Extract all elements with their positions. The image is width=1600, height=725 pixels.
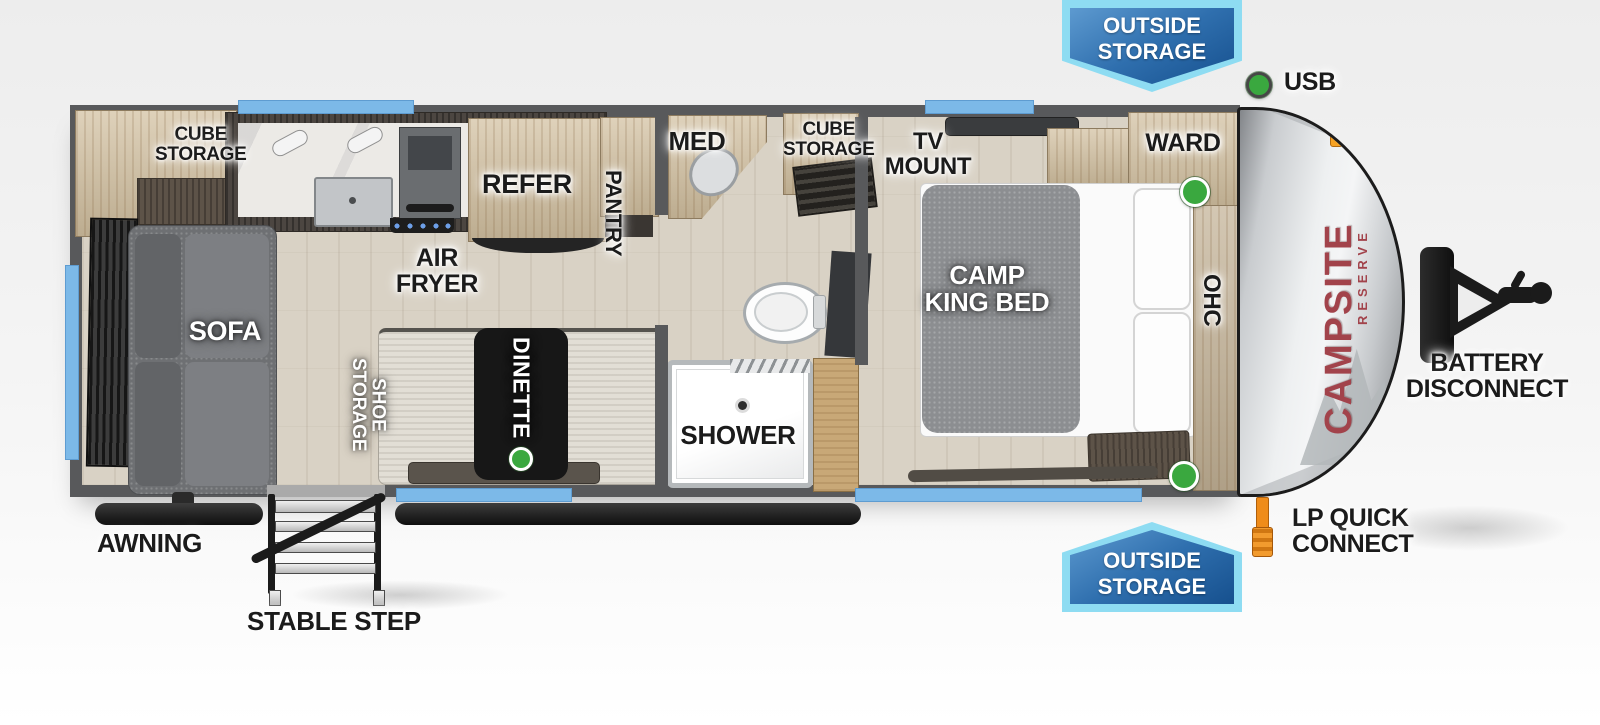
ward-label: WARD — [1145, 130, 1220, 156]
front-cap: CAMPSITE RESERVE — [1237, 107, 1405, 497]
window-bottom-dinette — [396, 488, 572, 502]
cap-graphic-swash — [1249, 107, 1405, 167]
refer-label: REFER — [482, 170, 572, 198]
lp-pipe — [1256, 497, 1269, 531]
bed-pillow — [1133, 312, 1191, 434]
partition-bath-left-top — [655, 117, 668, 215]
shower-label: SHOWER — [680, 422, 795, 449]
usb-indicator-dot — [1246, 72, 1272, 98]
range-oven — [399, 127, 461, 219]
sofa-backrest-cushion — [135, 362, 181, 486]
window-top-bedroom — [925, 100, 1034, 114]
bath-cube-storage-label: CUBE STORAGE — [783, 120, 875, 160]
marker-light-icon — [1330, 123, 1343, 147]
marker-light-icon — [1330, 467, 1343, 491]
outside-storage-bottom-banner: OUTSIDE STORAGE — [1062, 522, 1242, 612]
window-top-kitchen — [238, 100, 414, 114]
cube-storage-rear-label: CUBE STORAGE — [155, 125, 247, 165]
bath-door — [813, 358, 859, 492]
awning-tube-front — [395, 503, 861, 525]
dinette-label: DINETTE — [508, 337, 535, 439]
pantry-label: PANTRY — [601, 126, 624, 301]
outside-storage-top-label: OUTSIDE STORAGE — [1098, 13, 1206, 80]
stove-knob-strip — [390, 218, 454, 233]
lp-quick-connect-label: LP QUICK CONNECT — [1292, 505, 1414, 557]
bed-overhead-cabinet — [1047, 128, 1133, 187]
awning-tube-rear — [95, 503, 263, 525]
window-left-rear — [65, 265, 79, 460]
sink-drain-icon — [349, 197, 356, 204]
outside-storage-bottom-banner-bg: OUTSIDE STORAGE — [1070, 530, 1234, 604]
battery-disconnect-label: BATTERY DISCONNECT — [1406, 350, 1568, 402]
tongue-jack — [1420, 247, 1454, 363]
usb-label: USB — [1284, 69, 1336, 95]
sofa-seat-cushion — [185, 362, 269, 486]
shoe-storage-label: SHOE STORAGE — [348, 330, 388, 480]
oven-handle-icon — [406, 204, 454, 212]
stable-step-label: STABLE STEP — [247, 608, 421, 635]
step-foot — [269, 590, 281, 606]
toilet-seat — [754, 292, 808, 332]
partition-bath-left-bottom — [655, 325, 668, 485]
bed-pillow — [1133, 188, 1191, 310]
outside-storage-top-banner: OUTSIDE STORAGE — [1062, 0, 1242, 92]
usb-indicator-dot — [1180, 177, 1210, 207]
window-bottom-bedroom — [855, 488, 1142, 502]
shower-threshold — [730, 359, 810, 373]
floorplan-canvas: OUTSIDE STORAGE USB — [0, 0, 1600, 725]
usb-indicator-dot — [509, 447, 533, 471]
dinette-table: DINETTE — [474, 328, 568, 480]
shower-drain-icon — [738, 401, 747, 410]
toilet-hinge — [813, 295, 826, 329]
sofa — [128, 225, 277, 495]
range-top — [408, 136, 452, 170]
kitchen-sink — [314, 177, 393, 227]
outside-storage-bottom-label: OUTSIDE STORAGE — [1098, 534, 1206, 601]
sofa-backrest-cushion — [135, 234, 181, 358]
camp-king-bed-label: CAMP KING BED — [925, 262, 1050, 316]
hitch-ball-knob — [1530, 282, 1552, 304]
toilet — [743, 282, 827, 344]
step-foot — [373, 590, 385, 606]
med-label: MED — [669, 128, 726, 155]
tv-mount-label: TV MOUNT — [885, 130, 972, 180]
brand-series-text: RESERVE — [1355, 195, 1370, 325]
sofa-label: SOFA — [189, 317, 261, 345]
step-tread — [275, 563, 376, 574]
cabinet-end-panel — [137, 178, 237, 225]
entry-door-opening — [267, 485, 385, 497]
usb-indicator-dot — [1169, 461, 1199, 491]
ohc-label: OHC — [1198, 255, 1223, 345]
lp-quick-connect-fitting — [1252, 527, 1273, 557]
outside-storage-top-banner-bg: OUTSIDE STORAGE — [1070, 8, 1234, 84]
ohc-cabinet — [1193, 205, 1241, 491]
air-fryer-label: AIR FRYER — [396, 245, 478, 297]
awning-label: AWNING — [97, 530, 202, 557]
